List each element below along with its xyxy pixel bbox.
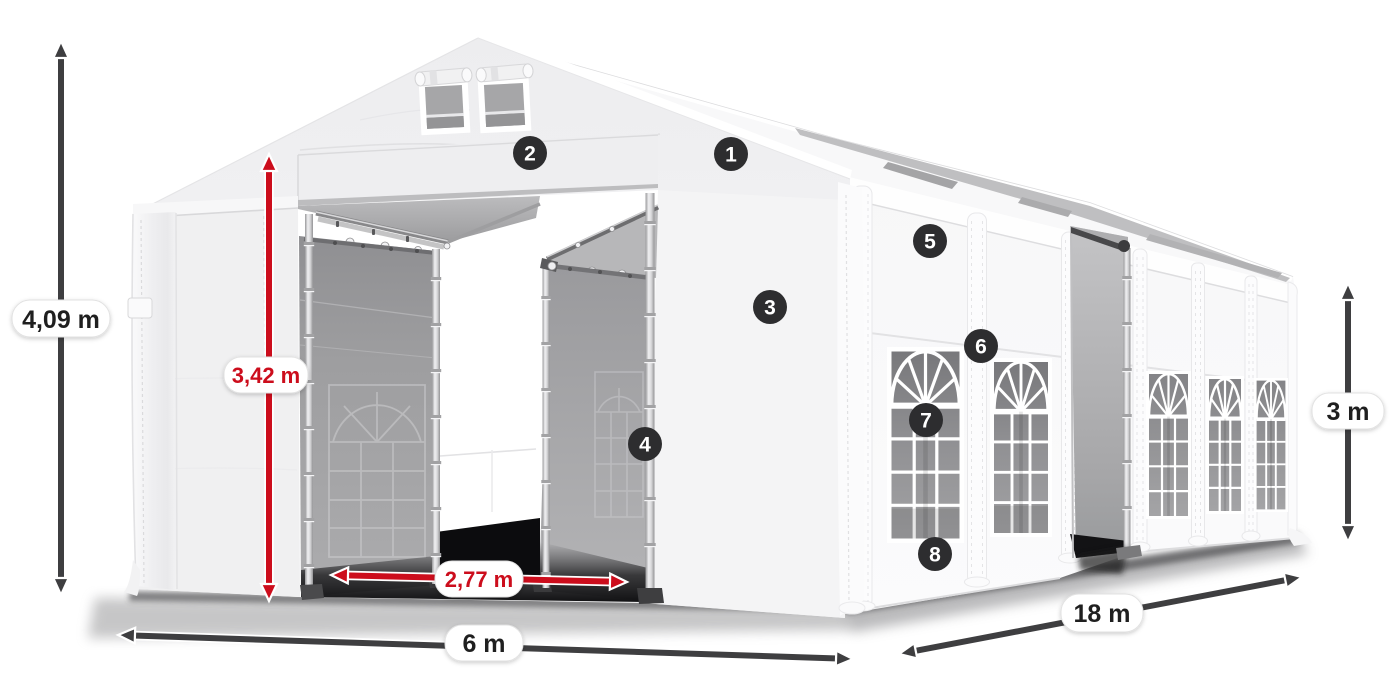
svg-text:6: 6	[975, 336, 987, 359]
svg-text:18 m: 18 m	[1074, 600, 1131, 628]
svg-text:1: 1	[725, 144, 737, 167]
svg-text:4: 4	[639, 434, 651, 457]
svg-text:8: 8	[929, 544, 941, 567]
svg-text:3 m: 3 m	[1326, 398, 1369, 426]
svg-text:2,77 m: 2,77 m	[445, 567, 514, 592]
svg-text:3: 3	[764, 297, 776, 320]
svg-text:5: 5	[924, 231, 936, 254]
svg-text:7: 7	[920, 410, 932, 433]
svg-text:3,42 m: 3,42 m	[232, 363, 301, 388]
svg-text:4,09 m: 4,09 m	[22, 306, 100, 334]
svg-text:6 m: 6 m	[462, 630, 505, 658]
svg-text:2: 2	[524, 143, 536, 166]
